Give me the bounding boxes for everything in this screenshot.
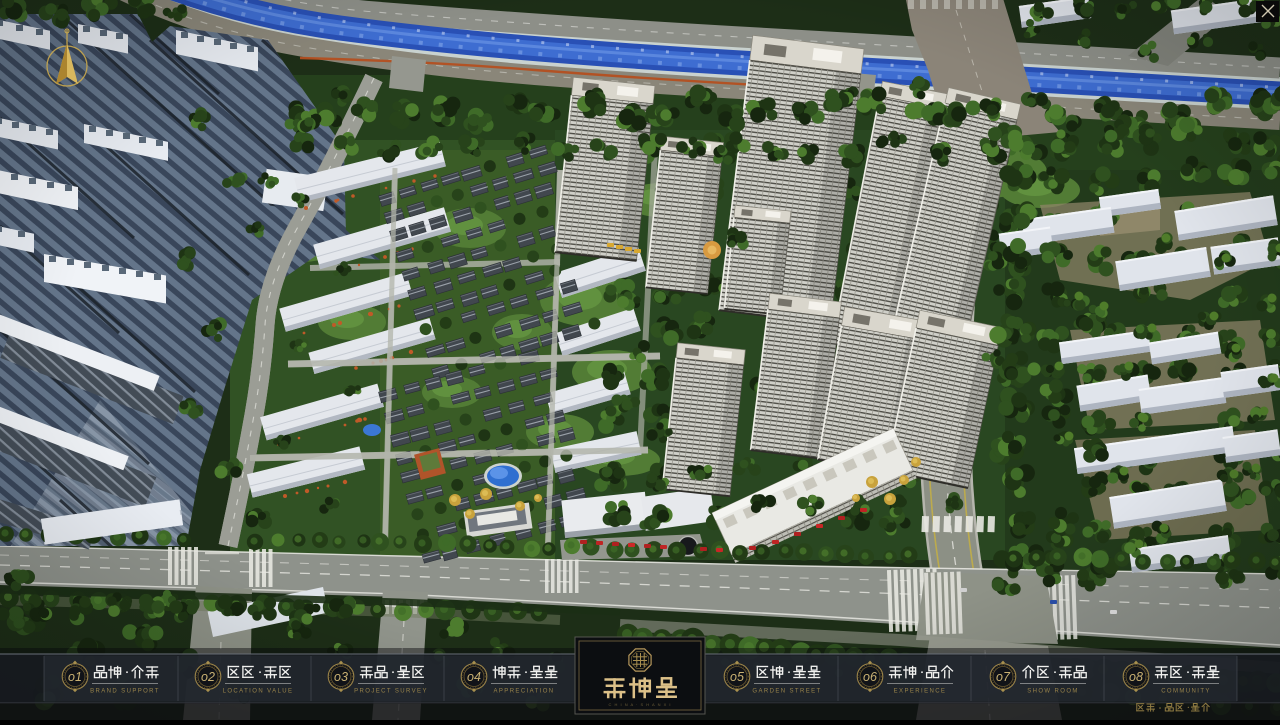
svg-text:APPRECIATION: APPRECIATION (493, 689, 554, 695)
svg-text:o4: o4 (467, 670, 481, 684)
svg-text:C H I N A · S H A N X I: C H I N A · S H A N X I (608, 702, 671, 707)
svg-text:o3: o3 (334, 670, 348, 684)
svg-text:GARDEN STREET: GARDEN STREET (752, 689, 821, 695)
svg-text:EXPERIENCE: EXPERIENCE (894, 689, 947, 695)
svg-text:SHOW ROOM: SHOW ROOM (1027, 689, 1079, 695)
svg-text:o1: o1 (68, 670, 82, 684)
svg-text:LOCATION VALUE: LOCATION VALUE (223, 689, 294, 695)
svg-text:BRAND SUPPORT: BRAND SUPPORT (90, 689, 160, 695)
svg-text:COMMUNITY: COMMUNITY (1161, 689, 1211, 695)
svg-text:o6: o6 (863, 670, 877, 684)
svg-text:o5: o5 (730, 670, 744, 684)
svg-text:o7: o7 (996, 670, 1011, 684)
svg-text:o2: o2 (201, 670, 215, 684)
svg-text:o8: o8 (1129, 670, 1143, 684)
svg-text:PROJECT SURVEY: PROJECT SURVEY (354, 689, 428, 695)
